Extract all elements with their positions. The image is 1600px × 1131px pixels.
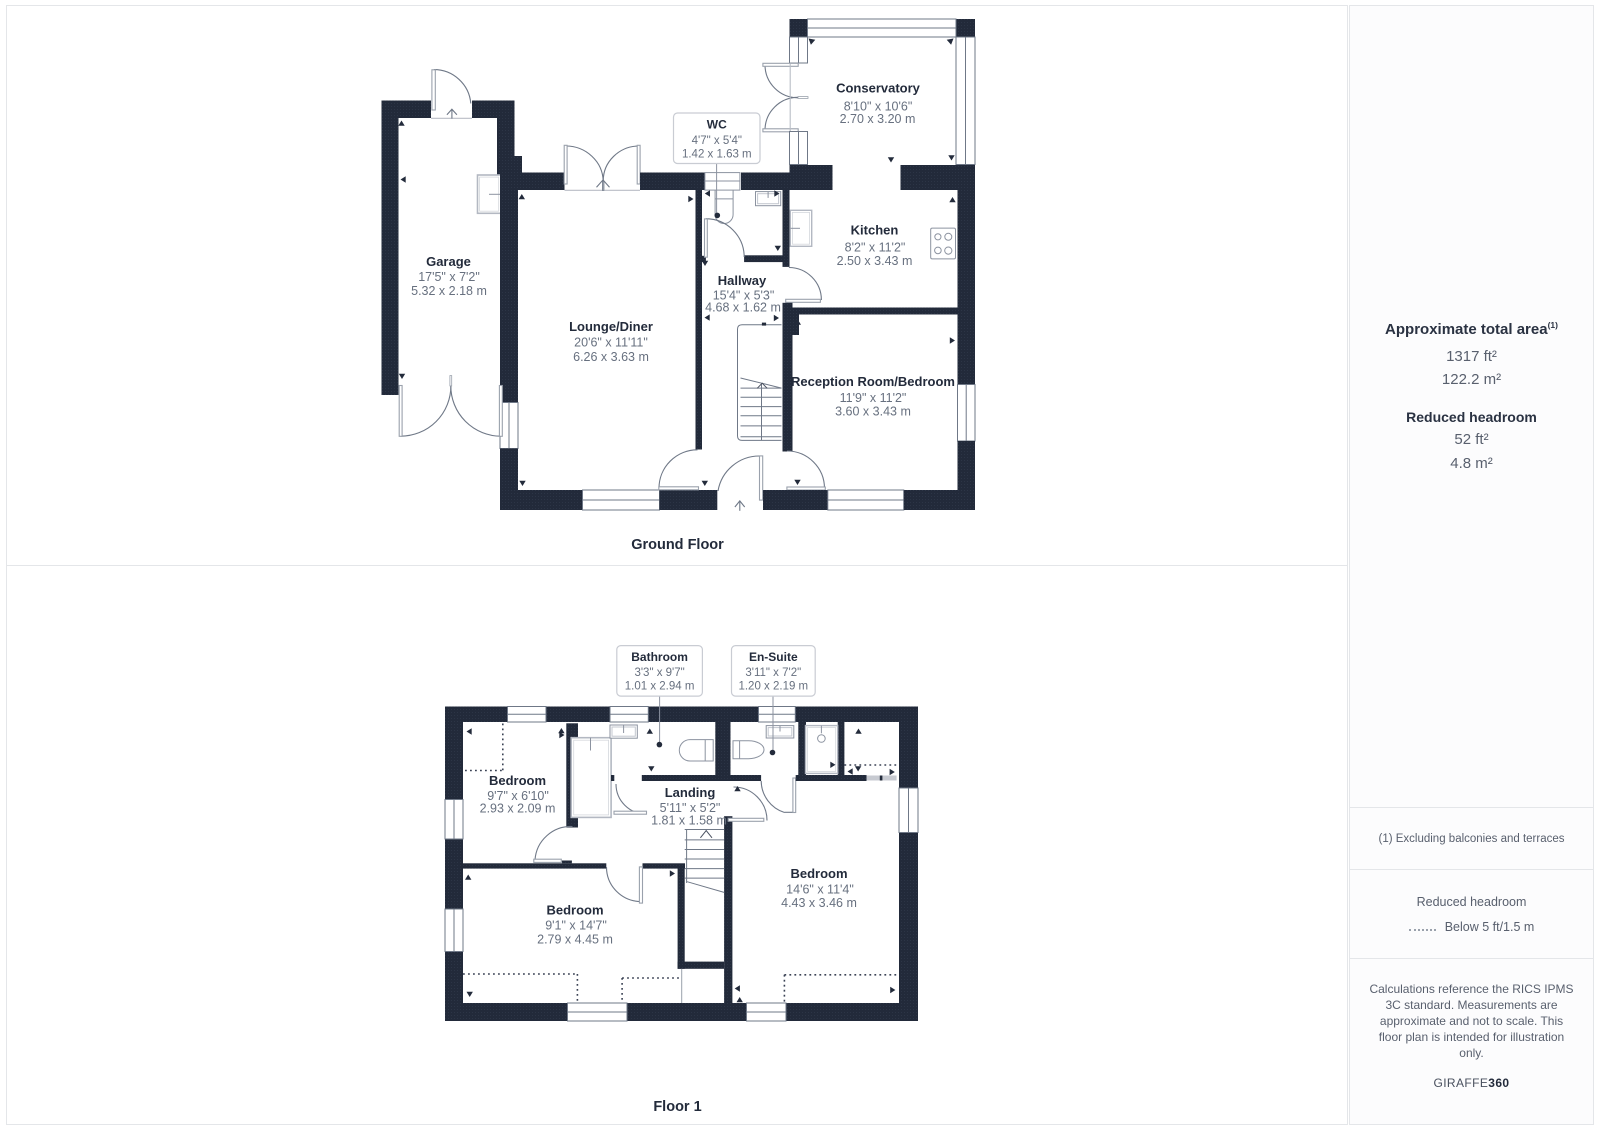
svg-text:Bedroom: Bedroom — [546, 903, 603, 918]
svg-text:4.43 x 3.46 m: 4.43 x 3.46 m — [781, 896, 857, 910]
svg-text:1.81 x 1.58 m: 1.81 x 1.58 m — [651, 814, 727, 828]
svg-text:3'3" x 9'7": 3'3" x 9'7" — [634, 667, 684, 679]
svg-text:Garage: Garage — [426, 254, 471, 269]
svg-text:2.93 x 2.09 m: 2.93 x 2.09 m — [480, 802, 556, 816]
svg-text:2.70 x 3.20 m: 2.70 x 3.20 m — [840, 112, 916, 126]
svg-text:Bedroom: Bedroom — [790, 866, 847, 881]
svg-text:2.50 x 3.43 m: 2.50 x 3.43 m — [837, 254, 913, 268]
svg-text:20'6" x 11'11": 20'6" x 11'11" — [574, 336, 648, 350]
svg-text:Kitchen: Kitchen — [851, 223, 899, 238]
svg-text:11'9" x 11'2": 11'9" x 11'2" — [840, 391, 907, 405]
svg-text:1.20 x 2.19 m: 1.20 x 2.19 m — [738, 681, 808, 693]
svg-text:9'1" x 14'7": 9'1" x 14'7" — [545, 919, 607, 933]
svg-text:Lounge/Diner: Lounge/Diner — [569, 319, 653, 334]
svg-text:1.01 x 2.94 m: 1.01 x 2.94 m — [625, 681, 695, 693]
svg-text:WC: WC — [707, 118, 727, 132]
svg-text:En-Suite: En-Suite — [749, 650, 798, 664]
svg-text:17'5" x 7'2": 17'5" x 7'2" — [418, 270, 480, 284]
svg-text:4.68 x 1.62 m: 4.68 x 1.62 m — [705, 301, 781, 315]
svg-text:Conservatory: Conservatory — [836, 81, 921, 96]
svg-text:6.26 x 3.63 m: 6.26 x 3.63 m — [573, 350, 649, 364]
svg-text:1.42 x 1.63 m: 1.42 x 1.63 m — [682, 149, 752, 161]
svg-text:5.32 x 2.18 m: 5.32 x 2.18 m — [411, 284, 487, 298]
svg-text:Bathroom: Bathroom — [631, 650, 688, 664]
svg-text:3'11" x 7'2": 3'11" x 7'2" — [745, 667, 801, 679]
svg-text:14'6" x 11'4": 14'6" x 11'4" — [786, 883, 854, 897]
svg-text:Hallway: Hallway — [718, 273, 767, 288]
svg-text:8'2" x 11'2": 8'2" x 11'2" — [845, 241, 906, 255]
svg-text:Floor 1: Floor 1 — [653, 1099, 701, 1115]
svg-text:3.60 x 3.43 m: 3.60 x 3.43 m — [835, 405, 911, 419]
svg-text:Ground Floor: Ground Floor — [631, 537, 724, 553]
svg-text:2.79 x 4.45 m: 2.79 x 4.45 m — [537, 933, 613, 947]
svg-text:Bedroom: Bedroom — [489, 773, 546, 788]
svg-text:Reception Room/Bedroom: Reception Room/Bedroom — [791, 374, 955, 389]
svg-text:4'7" x 5'4": 4'7" x 5'4" — [692, 135, 742, 147]
svg-text:Landing: Landing — [665, 785, 716, 800]
